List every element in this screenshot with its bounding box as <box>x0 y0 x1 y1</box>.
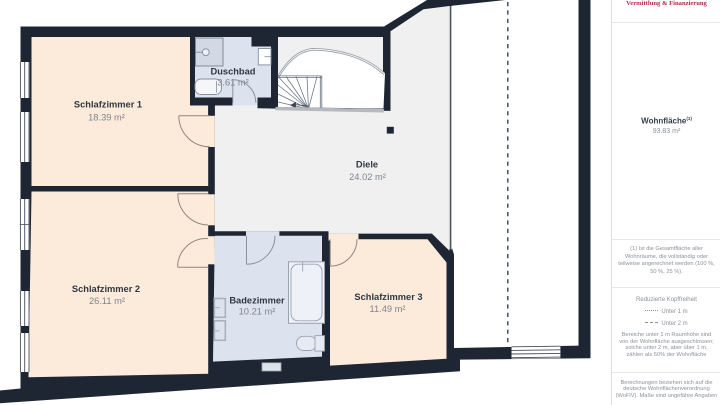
svg-text:24.02 m²: 24.02 m² <box>349 172 386 182</box>
svg-text:18.39 m²: 18.39 m² <box>88 112 125 122</box>
svg-text:11.49 m²: 11.49 m² <box>370 304 406 314</box>
svg-text:3.61 m²: 3.61 m² <box>217 77 249 87</box>
svg-text:Schlafzimmer 1: Schlafzimmer 1 <box>74 100 142 110</box>
svg-text:Badezimmer: Badezimmer <box>229 296 285 306</box>
svg-text:Duschbad: Duschbad <box>211 67 256 77</box>
svg-text:26.11 m²: 26.11 m² <box>89 296 125 306</box>
svg-text:Diele: Diele <box>356 159 378 169</box>
svg-text:Schlafzimmer 3: Schlafzimmer 3 <box>354 292 422 302</box>
svg-text:Schlafzimmer 2: Schlafzimmer 2 <box>72 284 140 294</box>
svg-text:10.21 m²: 10.21 m² <box>239 307 276 317</box>
